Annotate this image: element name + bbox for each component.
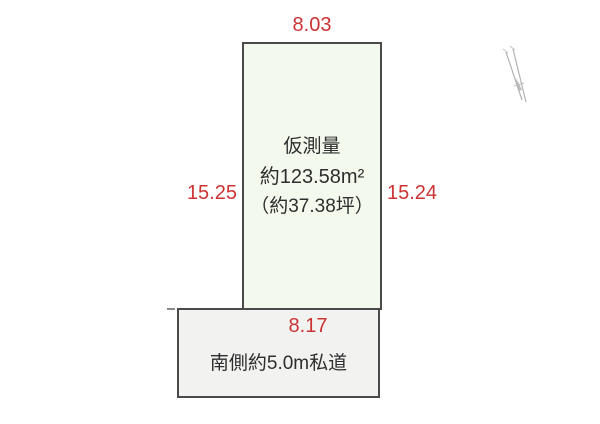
north-arrow-icon [495, 42, 547, 108]
dimension-south: 8.17 [238, 313, 378, 339]
land-plot-shape: 仮測量 約123.58m² （約37.38坪） [242, 42, 382, 310]
area-square-meters: 約123.58m² [244, 162, 380, 192]
area-tsubo: （約37.38坪） [244, 192, 380, 222]
plot-survey-text: 仮測量 約123.58m² （約37.38坪） [244, 132, 380, 222]
dimension-top: 8.03 [242, 12, 382, 38]
boundary-tick [167, 308, 175, 310]
dimension-left: 15.25 [160, 180, 237, 206]
survey-label: 仮測量 [244, 132, 380, 162]
dimension-right: 15.24 [387, 180, 467, 206]
road-label: 南側約5.0m私道 [177, 352, 380, 376]
site-plan-canvas: 8.03 仮測量 約123.58m² （約37.38坪） 15.25 15.24… [0, 0, 600, 424]
